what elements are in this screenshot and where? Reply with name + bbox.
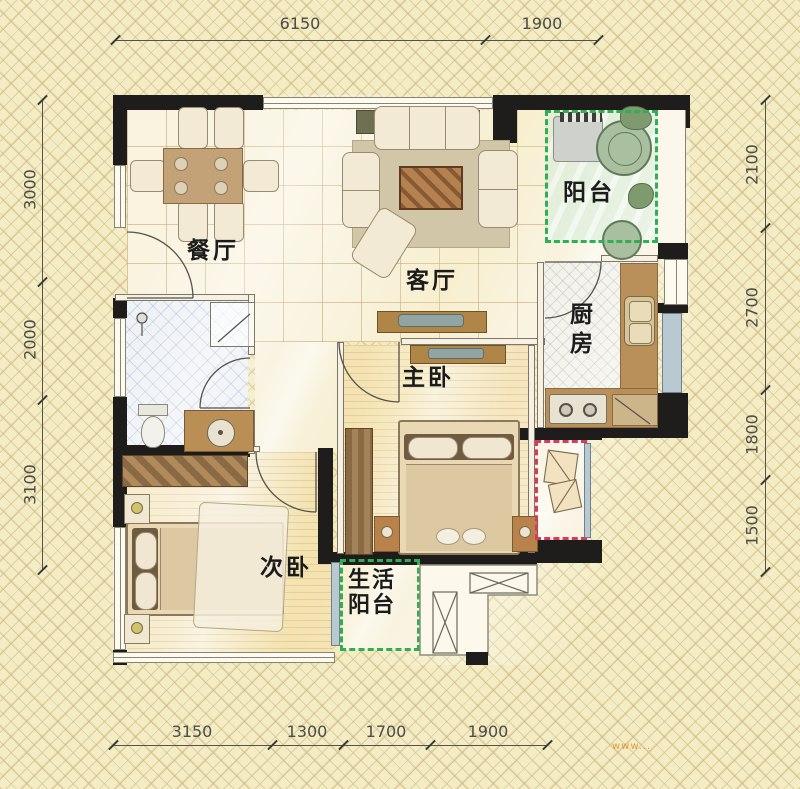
door-swings: [127, 232, 601, 512]
floorplan-page: { "rooms": { "dining": {"label": "餐厅"}, …: [0, 0, 800, 789]
room-label-utility-balcony: 生活 阳台: [348, 568, 418, 619]
utility-balcony-line1: 生活: [348, 568, 396, 593]
watermark-text: www...: [612, 741, 651, 752]
dim-top-1: 6150: [265, 14, 335, 33]
dim-right-2: 2700: [743, 273, 762, 343]
dim-left-3: 3100: [21, 450, 40, 520]
dimension-line-left: [42, 100, 43, 570]
dimension-line-bottom: [113, 745, 547, 746]
utility-balcony-line2: 阳台: [348, 593, 396, 618]
dim-bottom-3: 1700: [351, 722, 421, 741]
room-label-kitchen: 厨房: [565, 302, 591, 378]
room-label-living: 客厅: [406, 268, 458, 294]
dim-right-4: 1500: [743, 491, 762, 561]
dim-left-2: 2000: [21, 305, 40, 375]
dimension-line-top: [115, 40, 598, 41]
dim-bottom-1: 3150: [157, 722, 227, 741]
dim-right-3: 1800: [743, 400, 762, 470]
room-label-dining: 餐厅: [187, 238, 239, 264]
dim-top-2: 1900: [507, 14, 577, 33]
dimension-line-right: [765, 100, 766, 572]
room-label-balcony: 阳台: [563, 180, 615, 206]
ac-units: [544, 450, 582, 513]
dim-right-1: 2100: [743, 130, 762, 200]
dim-left-1: 3000: [21, 155, 40, 225]
dim-bottom-4: 1900: [453, 722, 523, 741]
plan-linework: [0, 0, 800, 789]
room-label-second-bedroom: 次卧: [260, 555, 312, 581]
wall-cap: [466, 652, 488, 665]
dim-bottom-2: 1300: [272, 722, 342, 741]
room-label-master-bedroom: 主卧: [402, 365, 454, 391]
